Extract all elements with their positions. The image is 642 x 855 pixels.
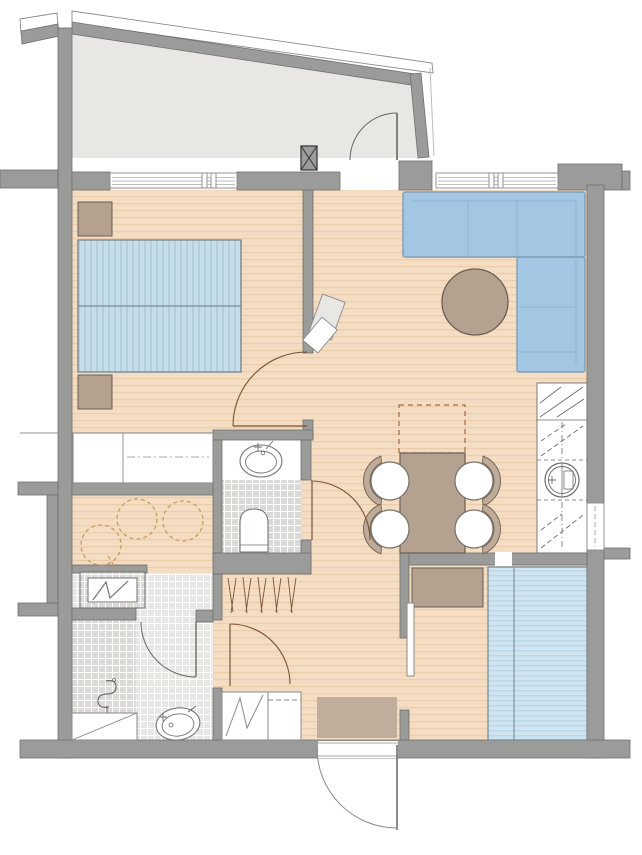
toilet [240, 509, 268, 552]
entrance [317, 741, 398, 830]
left-wall-stub-top [0, 170, 58, 188]
shower-screen [72, 713, 137, 740]
wardrobe [73, 433, 213, 483]
bedroom-window [110, 173, 237, 188]
terrace-outer-line [430, 68, 434, 156]
coffee-table [442, 269, 508, 335]
right-wall-stub [604, 548, 630, 559]
double-bed-2 [488, 567, 587, 740]
right-exterior-wall-lower [587, 550, 604, 758]
double-bed [78, 240, 241, 372]
dining-table [400, 453, 465, 553]
terrace [20, 11, 434, 170]
wc-bottom-wall [213, 553, 311, 574]
wc-right-wall-upper [301, 440, 311, 480]
washing-machine [222, 692, 268, 740]
nightstand-top [78, 202, 112, 236]
boiler [545, 463, 579, 497]
top-wall-seg-5 [622, 171, 630, 190]
x-column [301, 146, 317, 170]
living-room-window [436, 173, 558, 188]
appliance [268, 692, 301, 740]
wc-top-wall [213, 430, 313, 440]
left-exterior-wall [58, 28, 72, 758]
floor-plan-canvas [0, 0, 642, 855]
niche-wall-top [18, 482, 58, 495]
nightstand-bottom [78, 375, 112, 409]
bathroom-tile-dark-zone [72, 620, 136, 715]
dresser [412, 568, 483, 607]
left-niche-void [18, 495, 47, 603]
niche-wall-bottom [18, 603, 58, 616]
top-wall-seg-2 [237, 172, 340, 190]
wc-left-wall [213, 440, 222, 562]
doormat [317, 697, 397, 738]
closet-left-wall [213, 574, 222, 620]
wardrobe-bottom-wall [72, 483, 213, 495]
bedroom2-top-wall-gap [495, 552, 512, 566]
entrance-opening [318, 741, 398, 758]
sauna-heater [80, 572, 145, 608]
top-wall-seg-1 [72, 172, 110, 190]
bath-inner-wall-left [72, 608, 136, 620]
right-exterior-wall-upper [587, 185, 604, 503]
top-wall-seg-3 [399, 161, 432, 190]
bedroom2-top-wall [400, 553, 587, 565]
sliding-panel [407, 603, 414, 676]
bedroom2-left-wall-lower [400, 710, 409, 740]
hall-wall-stub-lower [213, 688, 222, 740]
niche-wall-side [47, 495, 58, 603]
bath-inner-wall-right [196, 610, 213, 622]
side-window [587, 503, 604, 550]
